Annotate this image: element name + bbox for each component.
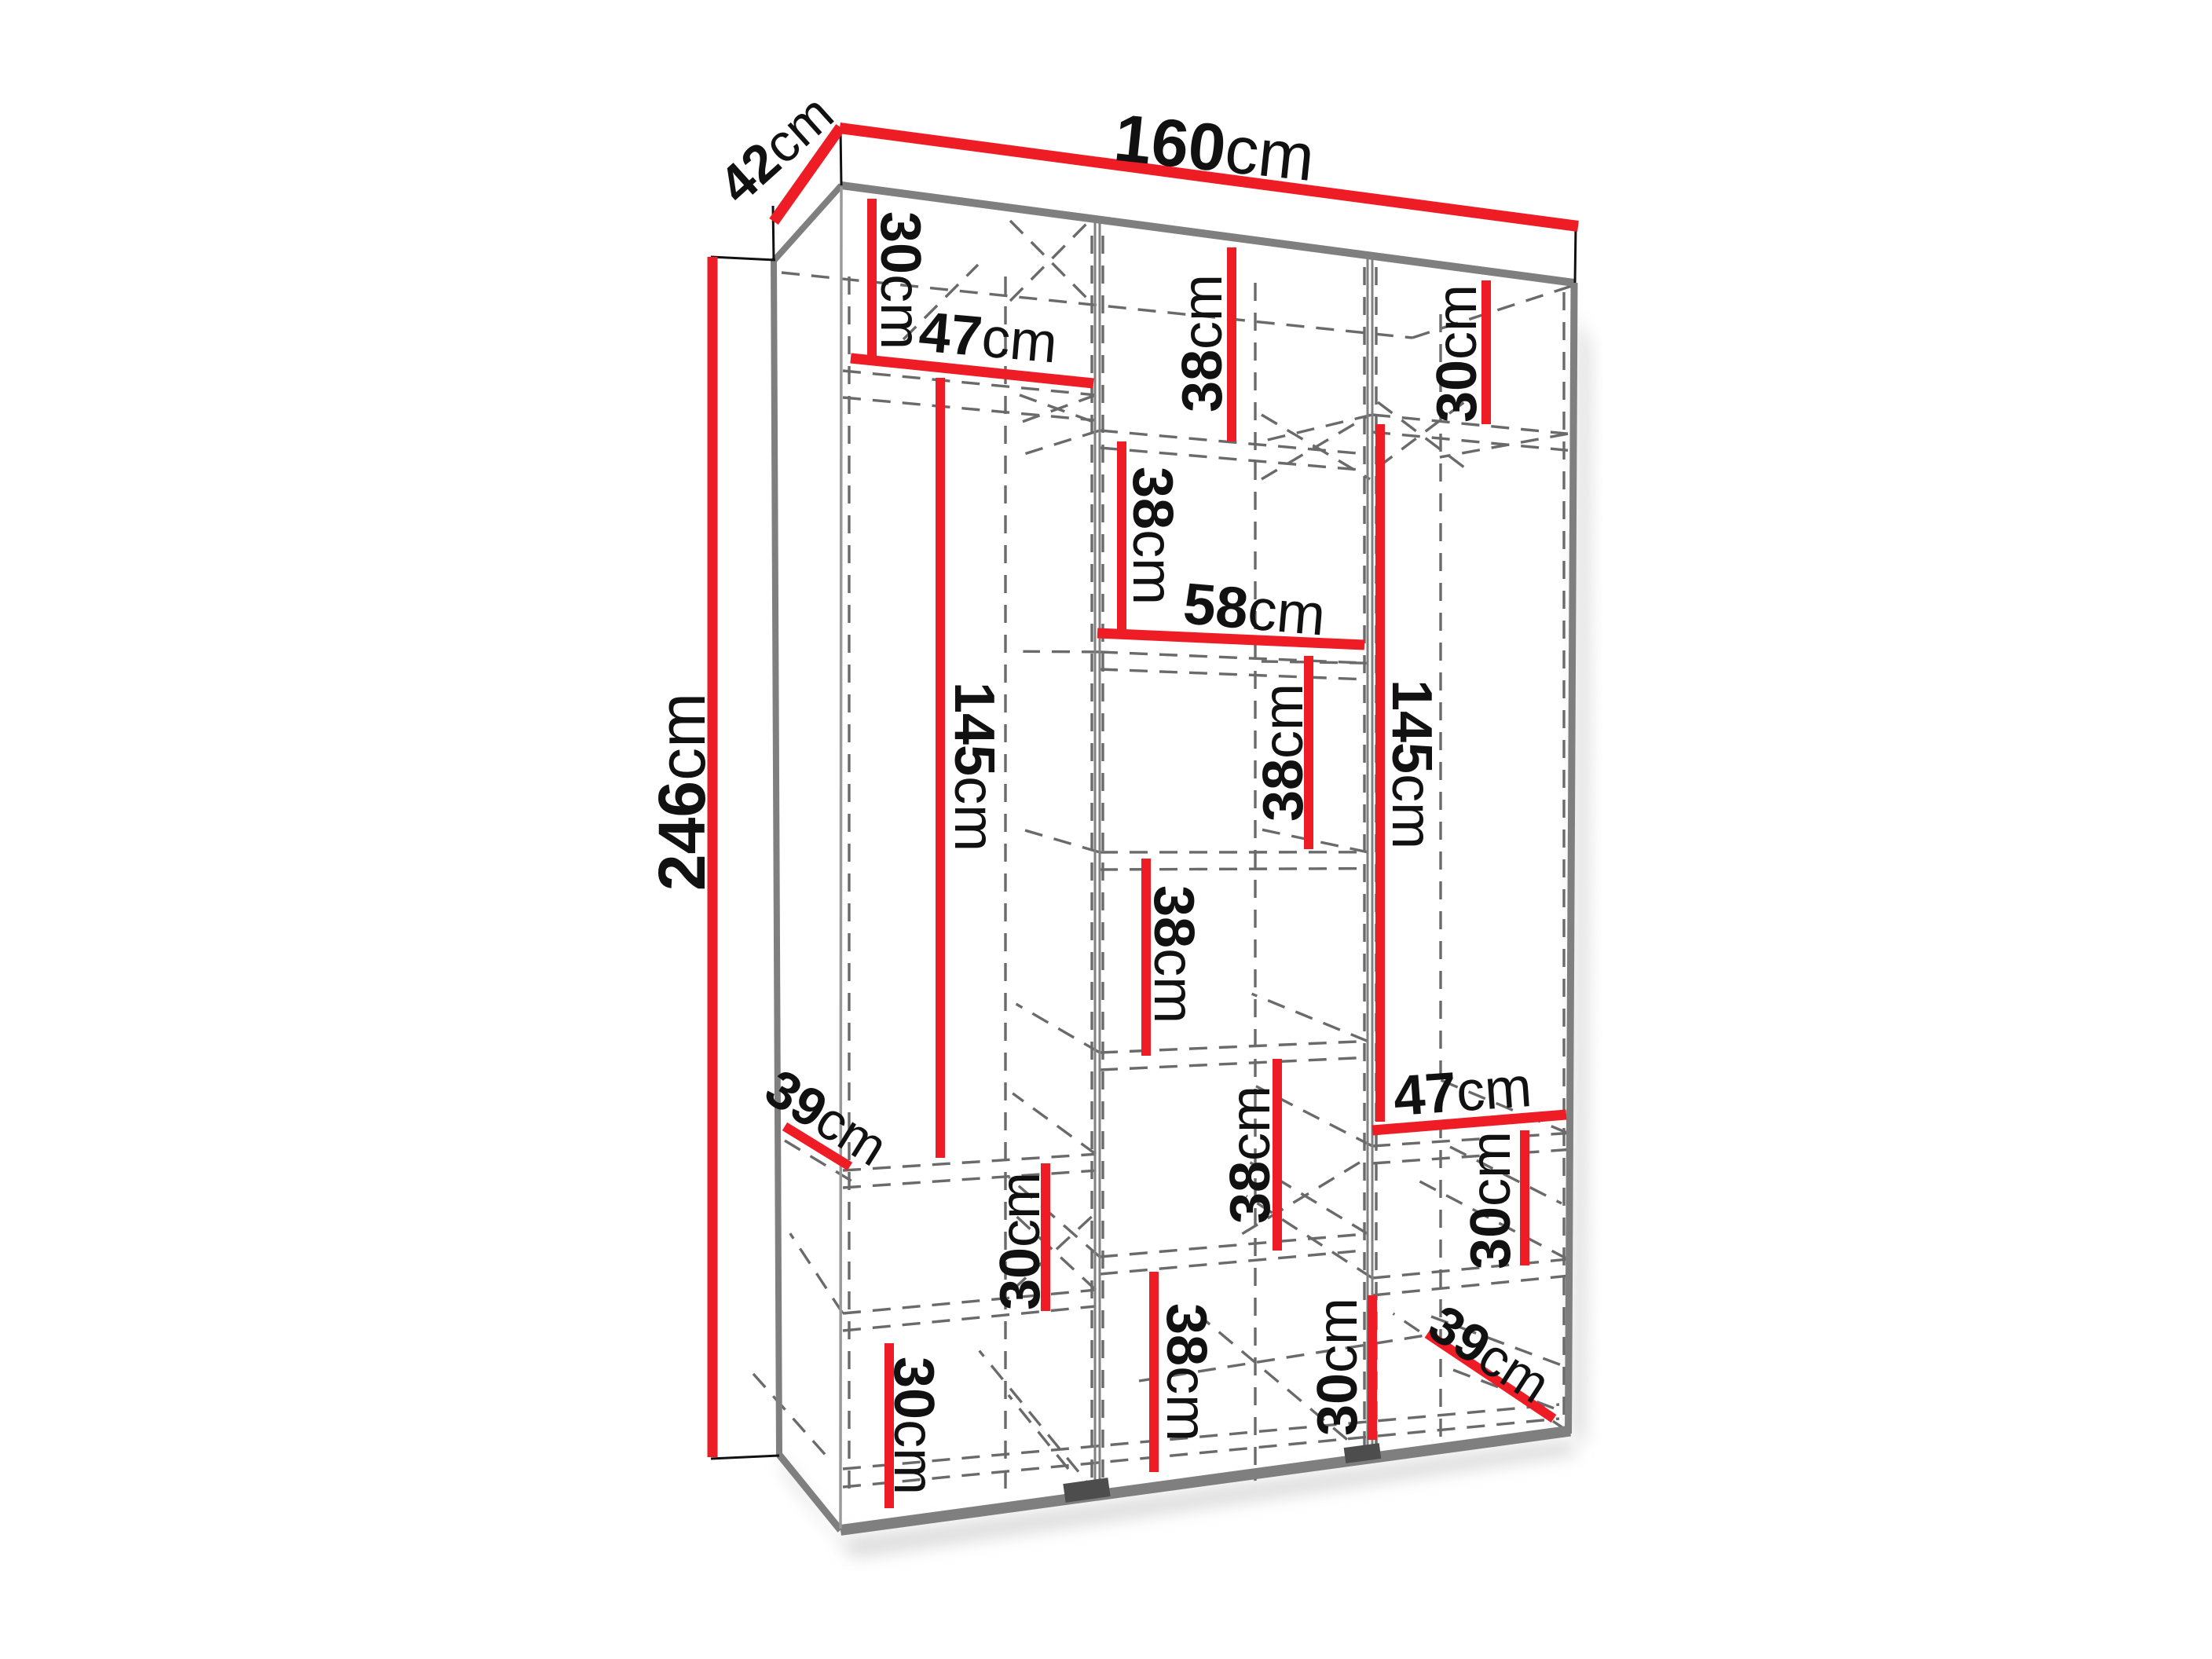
svg-text:30cm: 30cm xyxy=(882,1357,945,1495)
svg-text:38cm: 38cm xyxy=(1121,467,1184,605)
svg-text:246cm: 246cm xyxy=(645,693,719,891)
svg-text:38cm: 38cm xyxy=(1252,683,1315,822)
svg-text:30cm: 30cm xyxy=(1459,1131,1522,1269)
svg-text:30cm: 30cm xyxy=(1306,1298,1369,1436)
svg-text:38cm: 38cm xyxy=(1155,1303,1218,1441)
svg-text:30cm: 30cm xyxy=(989,1172,1052,1310)
svg-text:47cm: 47cm xyxy=(917,300,1060,375)
svg-text:38cm: 38cm xyxy=(1142,885,1205,1024)
svg-text:38cm: 38cm xyxy=(1171,274,1234,412)
svg-text:58cm: 58cm xyxy=(1181,570,1328,647)
svg-text:145cm: 145cm xyxy=(943,682,1005,851)
svg-text:145cm: 145cm xyxy=(1380,679,1443,849)
svg-text:38cm: 38cm xyxy=(1219,1086,1282,1224)
svg-text:47cm: 47cm xyxy=(1391,1056,1533,1128)
svg-text:30cm: 30cm xyxy=(1426,284,1489,423)
